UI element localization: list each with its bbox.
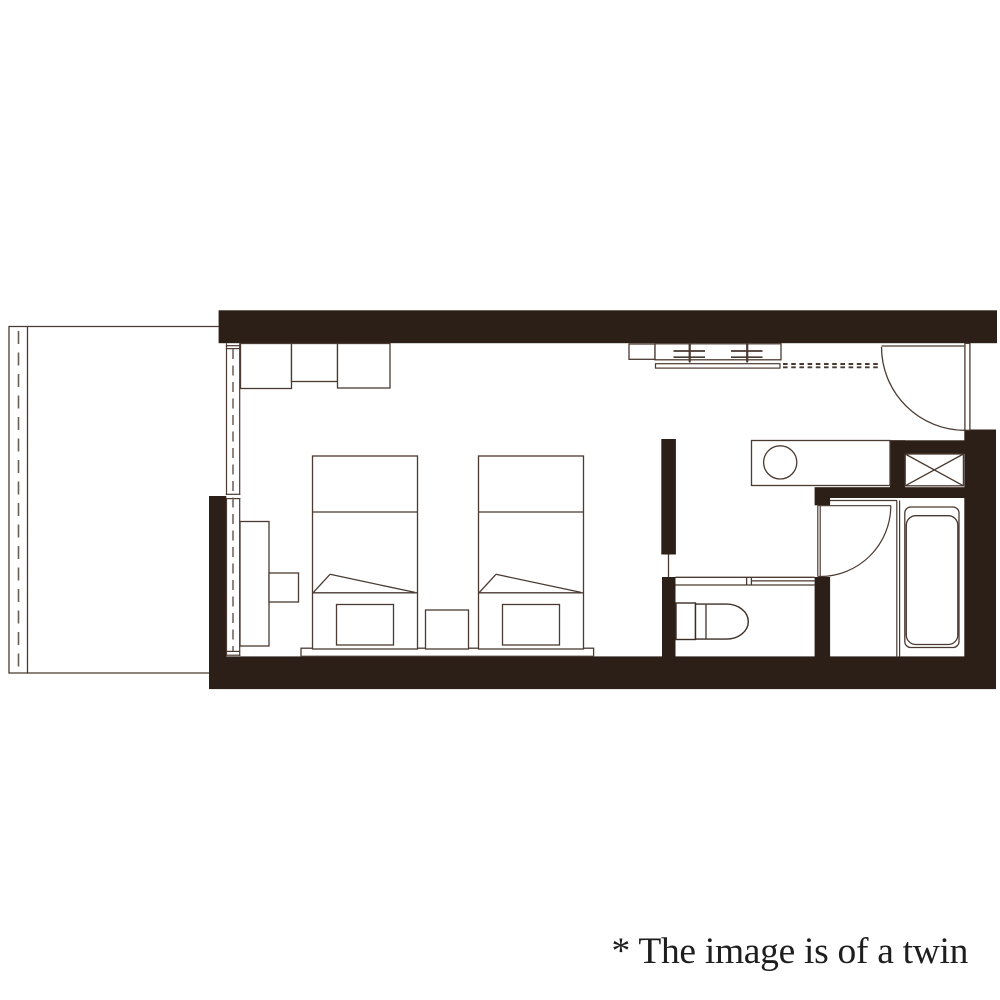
svg-text:* The image is of a twin: * The image is of a twin	[612, 931, 969, 972]
